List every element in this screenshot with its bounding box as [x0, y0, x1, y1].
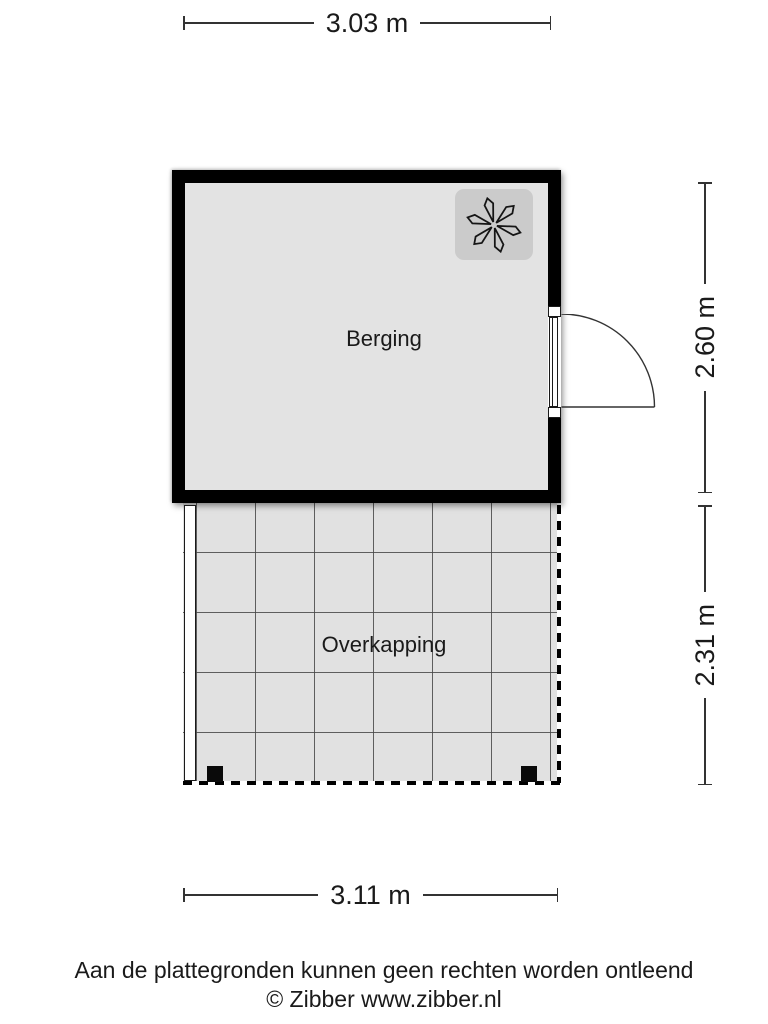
footer-disclaimer: Aan de plattegronden kunnen geen rechten… — [0, 956, 768, 985]
overkapping-post-left — [207, 766, 223, 782]
dimension-bottom: 3.11 m — [183, 880, 558, 910]
dimension-tick — [550, 16, 552, 30]
fan-icon-box — [455, 189, 533, 260]
footer: Aan de plattegronden kunnen geen rechten… — [0, 956, 768, 1014]
footer-copyright: © Zibber www.zibber.nl — [0, 985, 768, 1014]
dimension-line — [185, 22, 314, 24]
dimension-tick — [698, 784, 712, 786]
dimension-line — [704, 391, 706, 492]
overkapping-post-right — [521, 766, 537, 782]
dimension-line — [704, 184, 706, 285]
dimension-tick — [698, 492, 712, 494]
dimension-bottom-label: 3.11 m — [330, 880, 411, 911]
dimension-top-label: 3.03 m — [326, 8, 409, 39]
dimension-line — [420, 22, 549, 24]
dimension-line — [185, 894, 319, 896]
dimension-top: 3.03 m — [183, 8, 551, 38]
berging-label: Berging — [0, 326, 768, 352]
door-jamb-bottom — [548, 407, 561, 418]
dimension-line — [704, 507, 706, 592]
door-jamb-top — [548, 306, 561, 317]
dimension-line — [423, 894, 557, 896]
dimension-tick — [557, 888, 559, 902]
overkapping-dashed-edge-bottom — [183, 781, 561, 785]
floorplan-canvas: 3.03 m Overkapping Berging — [0, 0, 768, 1024]
dimension-line — [704, 698, 706, 783]
fan-icon — [462, 194, 526, 256]
overkapping-label: Overkapping — [0, 632, 768, 658]
